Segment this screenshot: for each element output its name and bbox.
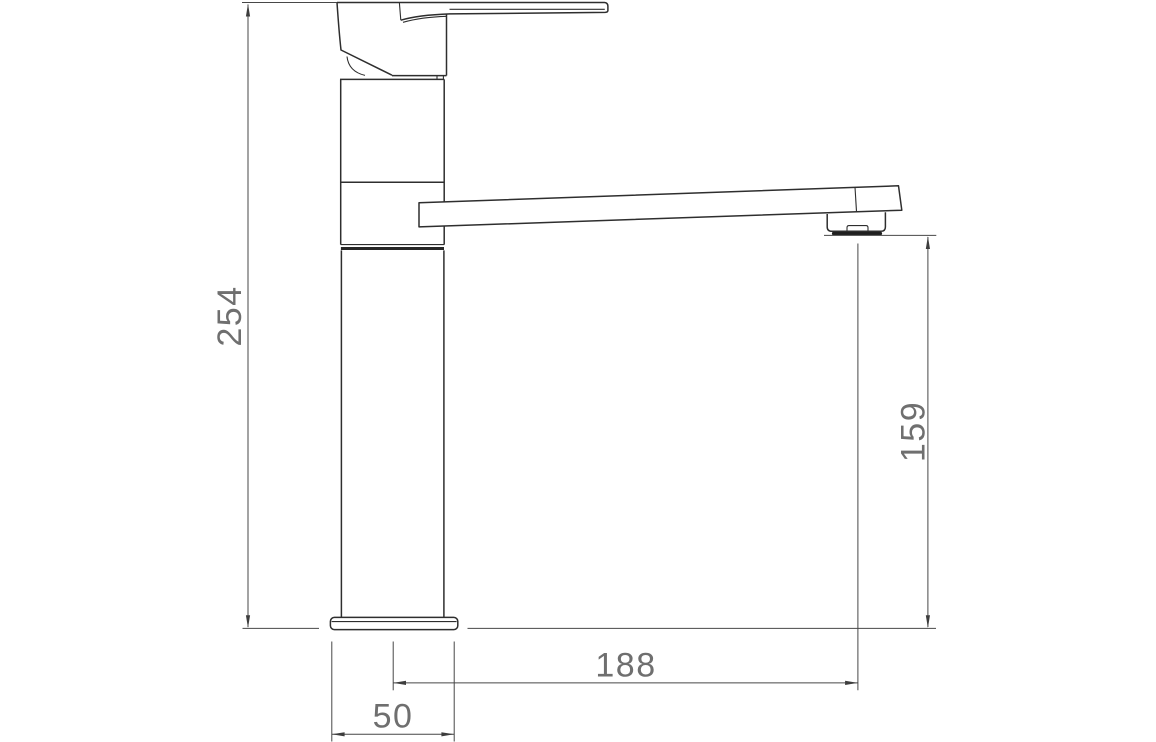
faucet-dimension-drawing: 254 159 188 bbox=[0, 0, 1156, 742]
dimensions: 254 159 188 bbox=[211, 3, 936, 742]
arrowhead-right bbox=[441, 732, 454, 736]
arrowhead-left bbox=[332, 732, 345, 736]
dimension-spout-reach: 188 bbox=[393, 244, 858, 691]
flange-outline bbox=[330, 617, 457, 629]
handle-body-left-edge bbox=[337, 3, 392, 76]
dimension-spout-height: 159 bbox=[824, 235, 936, 628]
arrowhead-up bbox=[246, 4, 250, 17]
dimension-label-base-width: 50 bbox=[373, 698, 414, 736]
faucet-drawing bbox=[330, 3, 901, 630]
lever-root-edge bbox=[399, 3, 400, 20]
dimension-label-overall-height: 254 bbox=[211, 285, 249, 346]
dimension-label-spout-height: 159 bbox=[895, 401, 933, 462]
aerator-notch bbox=[847, 226, 868, 231]
lever-underside-echo-curve bbox=[403, 16, 447, 22]
lever-blade-outline bbox=[337, 3, 608, 21]
arrowhead-down bbox=[246, 615, 250, 628]
arrowhead-right bbox=[845, 681, 858, 685]
aerator bbox=[827, 212, 885, 233]
technical-drawing-page: 254 159 188 bbox=[0, 0, 1156, 742]
arrowhead-left bbox=[393, 681, 406, 685]
dimension-label-spout-reach: 188 bbox=[595, 647, 656, 685]
arrowhead-up bbox=[926, 236, 930, 249]
spout-outline bbox=[419, 186, 902, 227]
aerator-housing bbox=[827, 212, 885, 231]
base-flange bbox=[330, 617, 457, 629]
spout-arm bbox=[419, 186, 902, 227]
cartridge-dome-arc bbox=[347, 57, 365, 76]
handle-lever bbox=[337, 3, 608, 80]
arrowhead-down bbox=[926, 615, 930, 628]
faucet-body bbox=[340, 79, 444, 617]
dimension-overall-height: 254 bbox=[211, 3, 337, 629]
